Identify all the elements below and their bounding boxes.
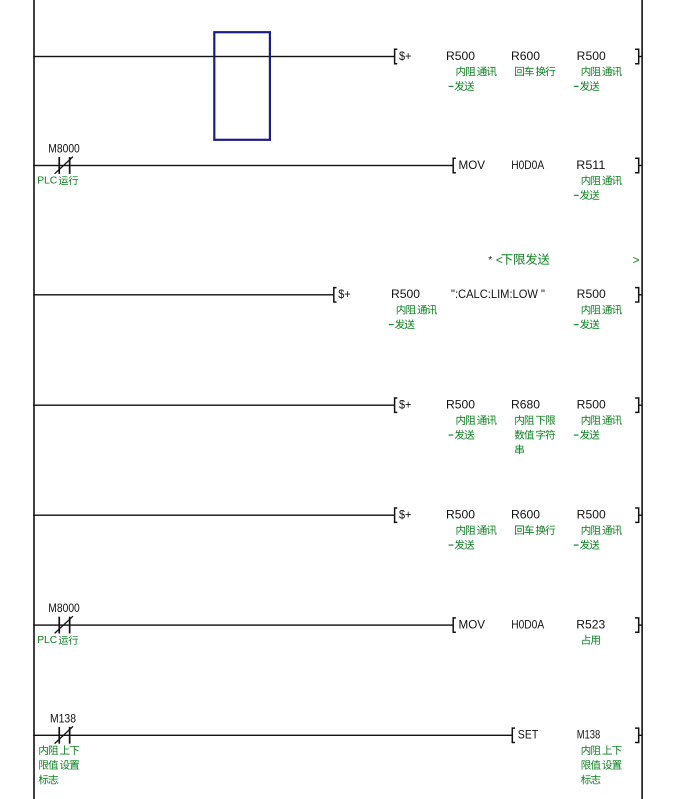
- svg-text:PLC: PLC: [37, 634, 57, 646]
- svg-text:R500: R500: [577, 49, 606, 63]
- svg-text:R500: R500: [577, 398, 606, 412]
- svg-text:$+: $+: [399, 398, 411, 412]
- svg-text:R500: R500: [391, 287, 420, 301]
- svg-text:$+: $+: [399, 508, 411, 522]
- svg-text:R500: R500: [446, 398, 475, 412]
- svg-text:R600: R600: [511, 49, 540, 63]
- svg-text:MOV: MOV: [459, 617, 486, 631]
- svg-text:>: >: [633, 253, 640, 267]
- svg-text:":CALC:LIM:LOW ": ":CALC:LIM:LOW ": [451, 287, 545, 301]
- svg-text:H0D0A: H0D0A: [511, 158, 544, 172]
- svg-text:*: *: [488, 254, 492, 266]
- svg-text:SET: SET: [518, 728, 539, 742]
- svg-text:R500: R500: [577, 508, 606, 522]
- svg-text:R511: R511: [576, 158, 605, 172]
- svg-text:R500: R500: [446, 508, 475, 522]
- svg-text:$+: $+: [338, 287, 350, 301]
- svg-text:R600: R600: [511, 508, 540, 522]
- svg-text:M138: M138: [50, 711, 76, 725]
- svg-text:PLC: PLC: [37, 174, 57, 186]
- svg-text:M138: M138: [577, 728, 601, 742]
- svg-text:R500: R500: [577, 287, 606, 301]
- svg-text:MOV: MOV: [459, 158, 486, 172]
- svg-text:$+: $+: [399, 49, 411, 63]
- svg-text:M8000: M8000: [48, 142, 80, 156]
- svg-text:R500: R500: [446, 49, 475, 63]
- svg-text:R523: R523: [576, 617, 605, 631]
- svg-text:H0D0A: H0D0A: [511, 617, 544, 631]
- svg-text:R680: R680: [511, 398, 540, 412]
- svg-text:M8000: M8000: [48, 601, 80, 615]
